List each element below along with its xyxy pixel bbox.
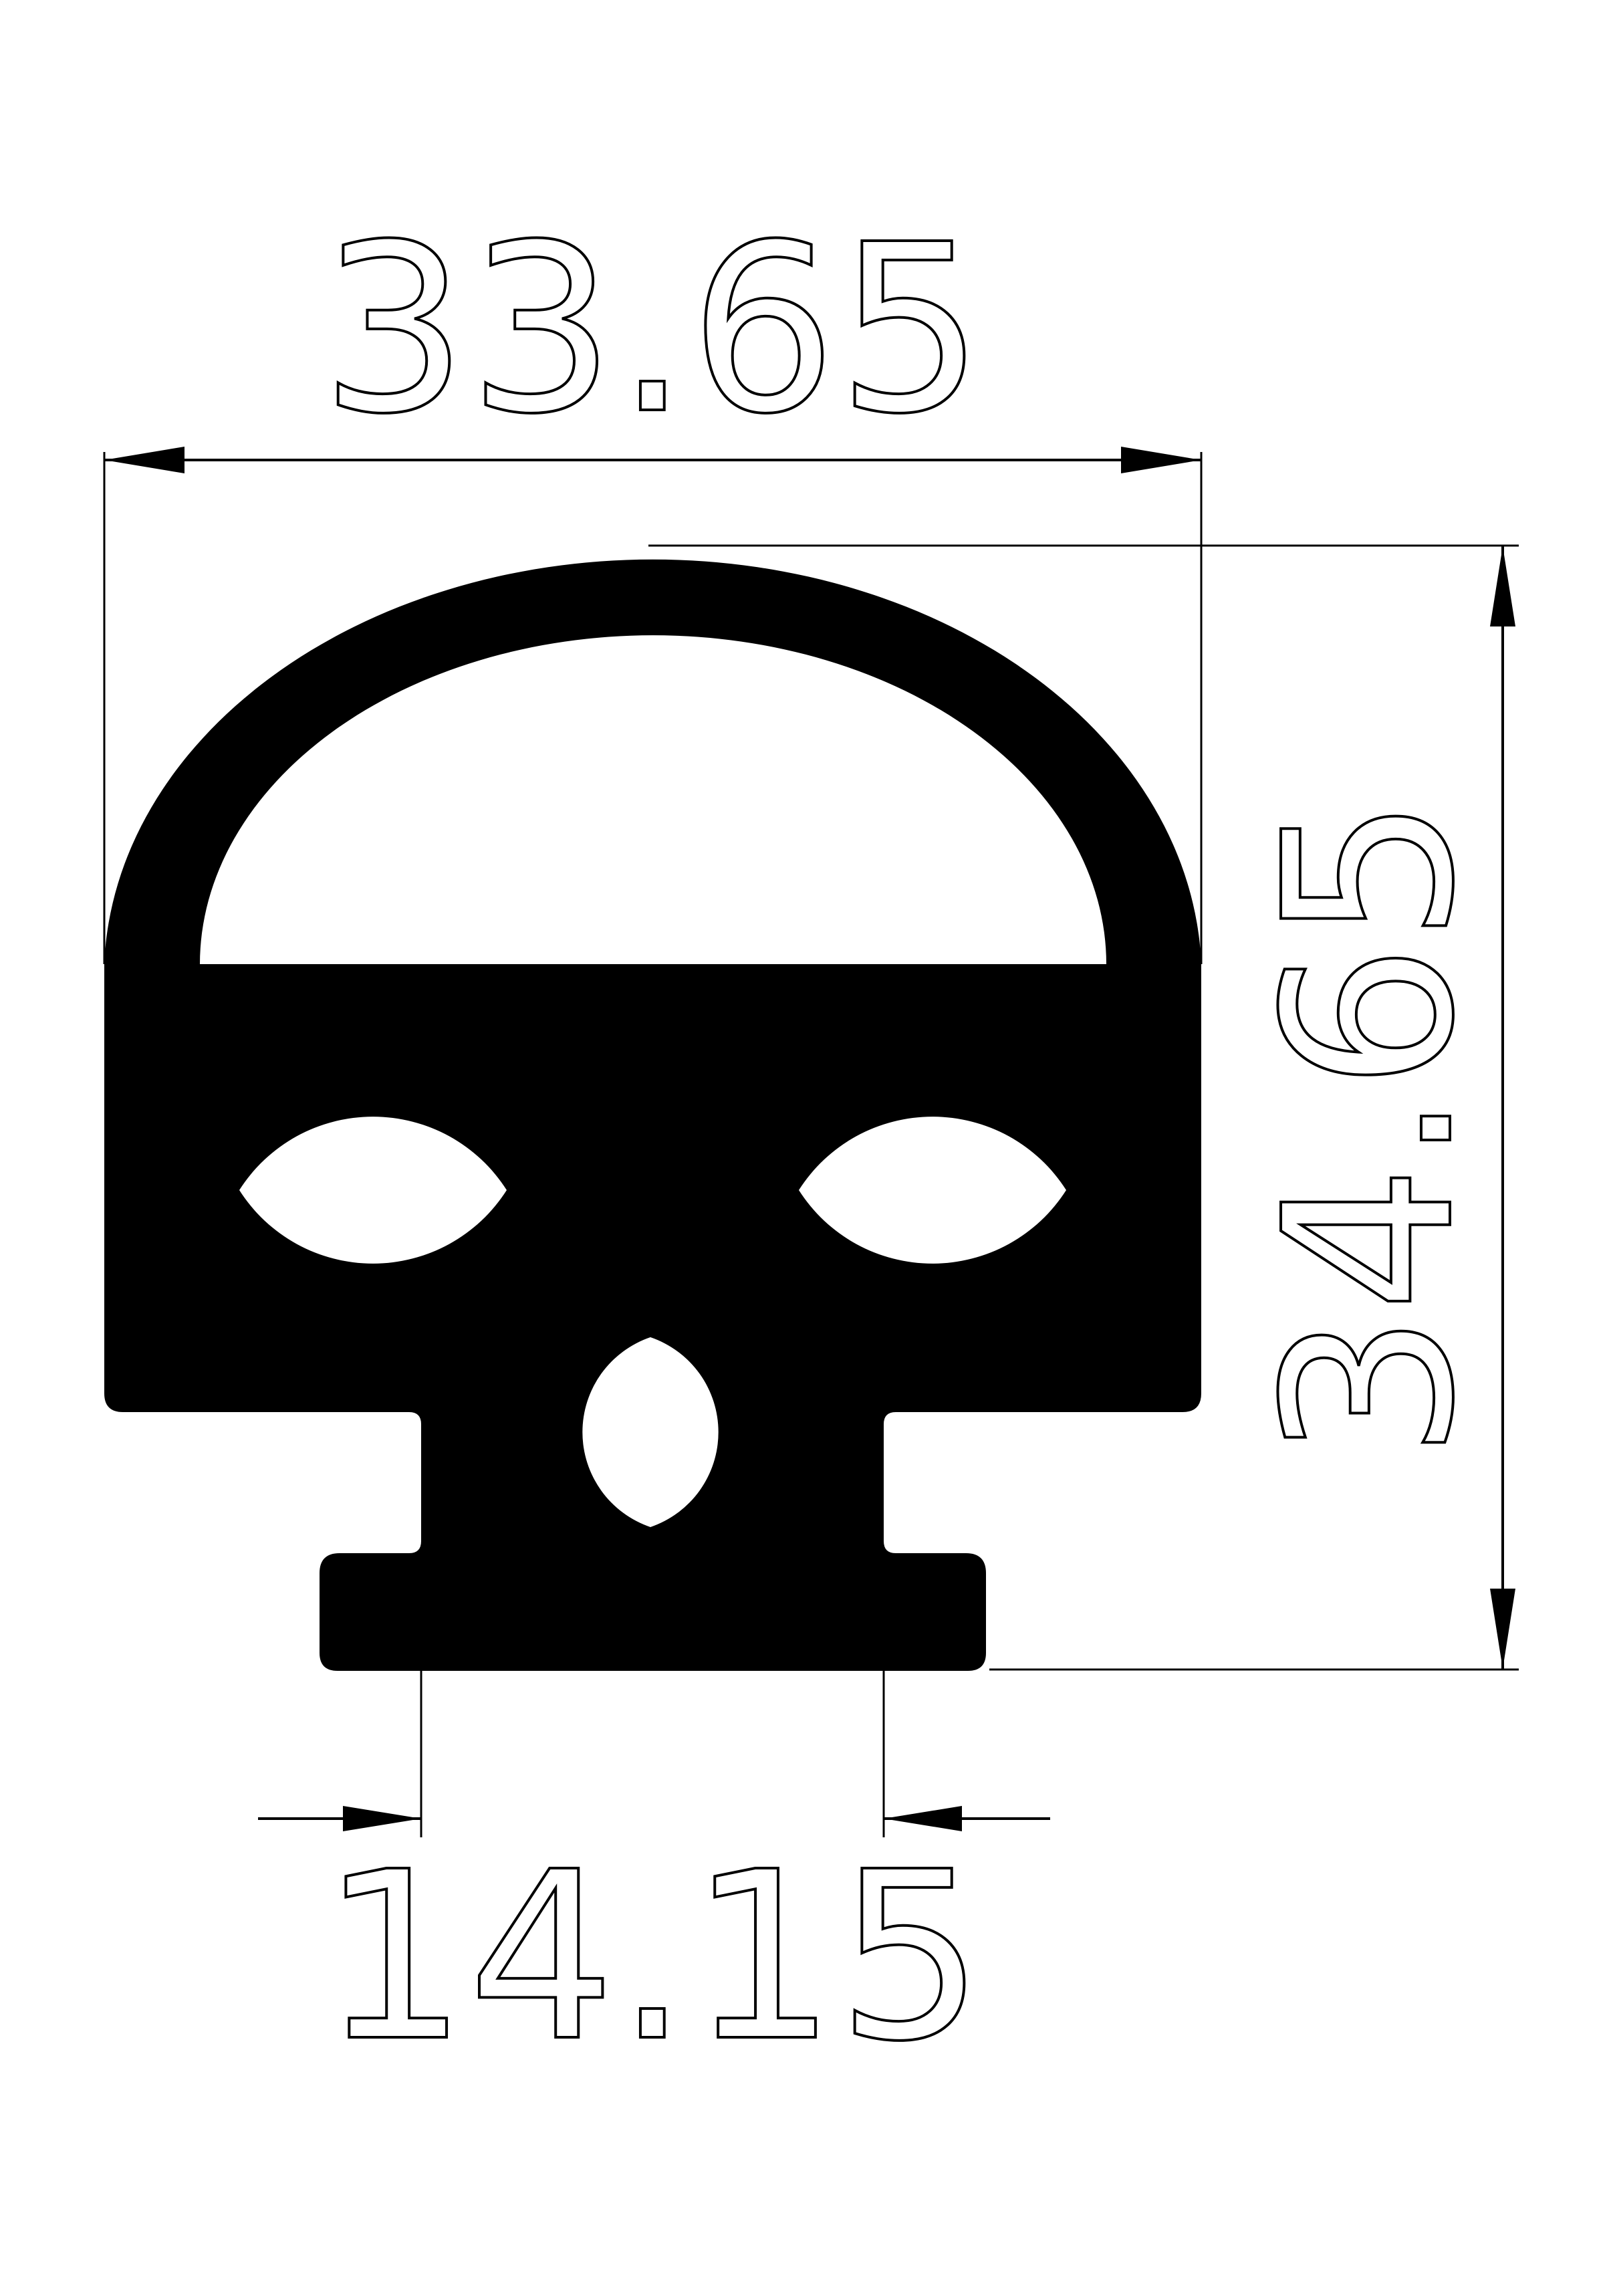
dim-top-arrow-right-icon <box>1121 447 1201 473</box>
seal-profile-silhouette <box>104 560 1201 1671</box>
dim-right-value-label: 34.65 <box>1235 796 1505 1460</box>
dim-top-arrow-left-icon <box>104 447 184 473</box>
dim-bottom-value-label: 14.15 <box>320 1822 984 2092</box>
dim-right-arrow-up-icon <box>1490 546 1515 626</box>
profile-drawing-canvas: 33.65 34.65 14.15 <box>0 0 1607 2296</box>
dimension-base-width: 14.15 <box>258 1671 1050 2092</box>
drawing-sheet: 33.65 34.65 14.15 <box>0 0 1607 2296</box>
dim-right-arrow-down-icon <box>1490 1589 1515 1669</box>
dim-top-value-label: 33.65 <box>320 195 984 465</box>
